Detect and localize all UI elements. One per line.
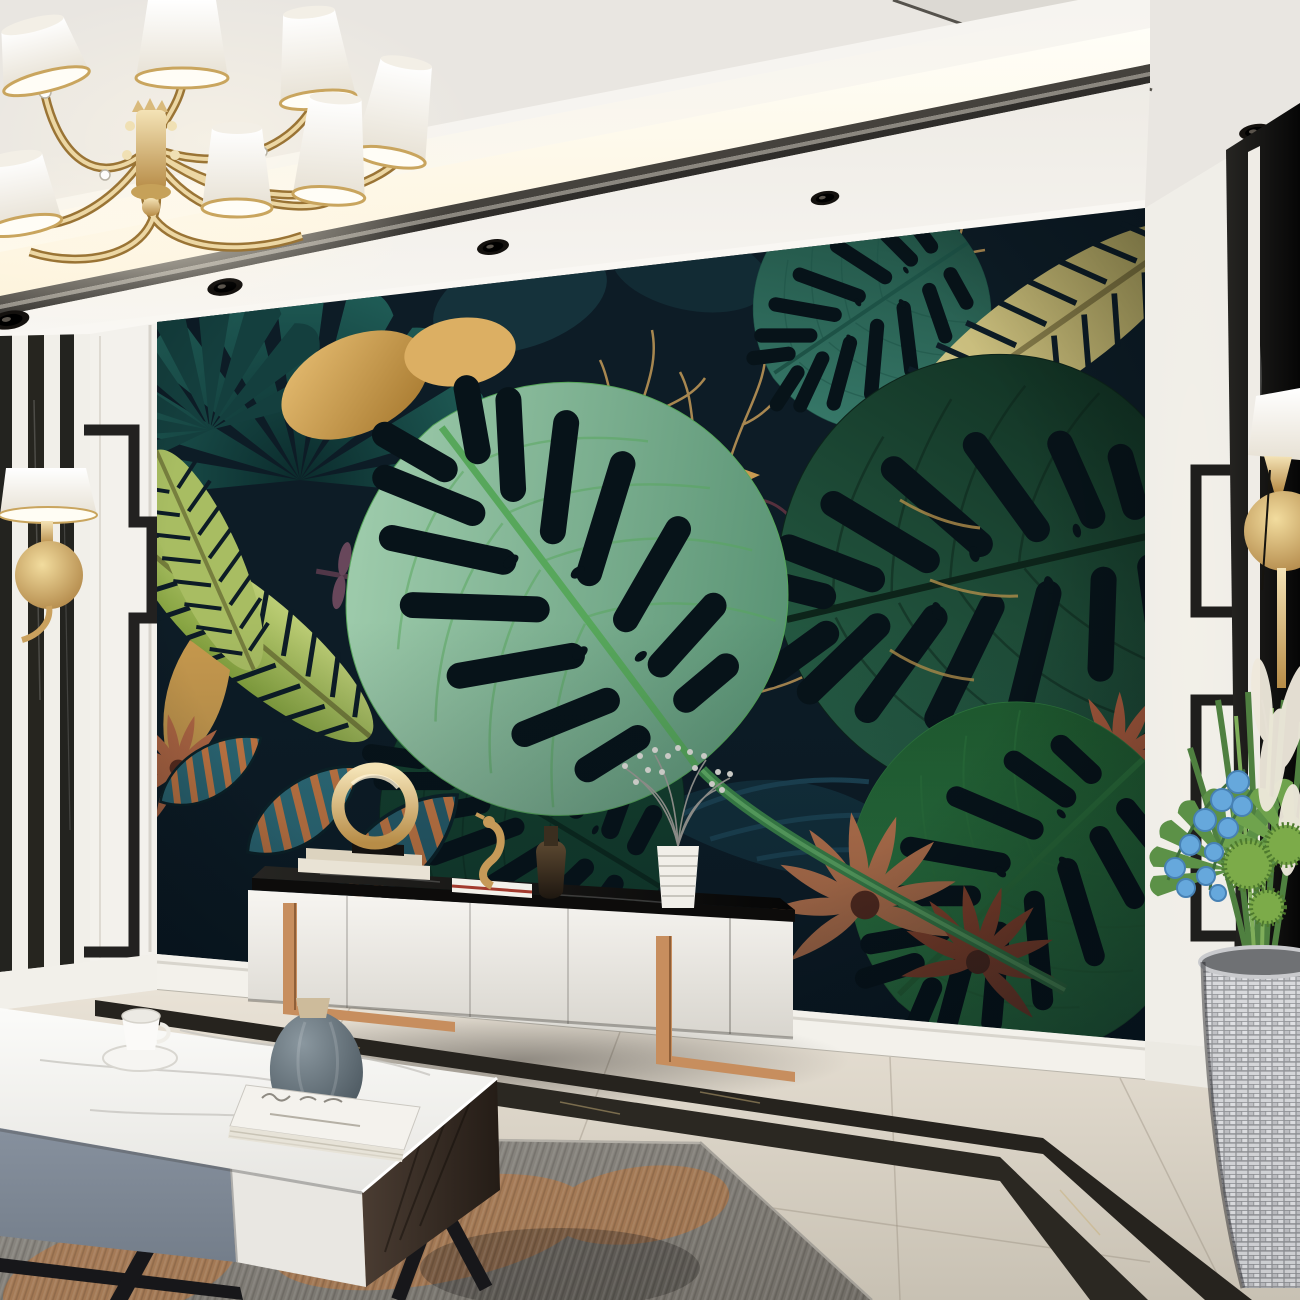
white-ribbed-vase	[657, 846, 699, 908]
lamp-shade	[136, 0, 228, 88]
vase-wood-stopper	[296, 998, 330, 1018]
living-room-photo: Modern living room with 3D tropical leaf…	[0, 0, 1300, 1300]
marble-pinstripes	[0, 330, 74, 980]
left-wall	[0, 323, 157, 980]
sconce-shade	[1248, 388, 1300, 460]
smoked-glass-vessel	[536, 840, 566, 899]
lamp-shade	[202, 122, 272, 217]
sconce-rod	[1277, 568, 1286, 688]
vessel-neck	[544, 826, 558, 846]
sconce-disc	[15, 541, 83, 609]
